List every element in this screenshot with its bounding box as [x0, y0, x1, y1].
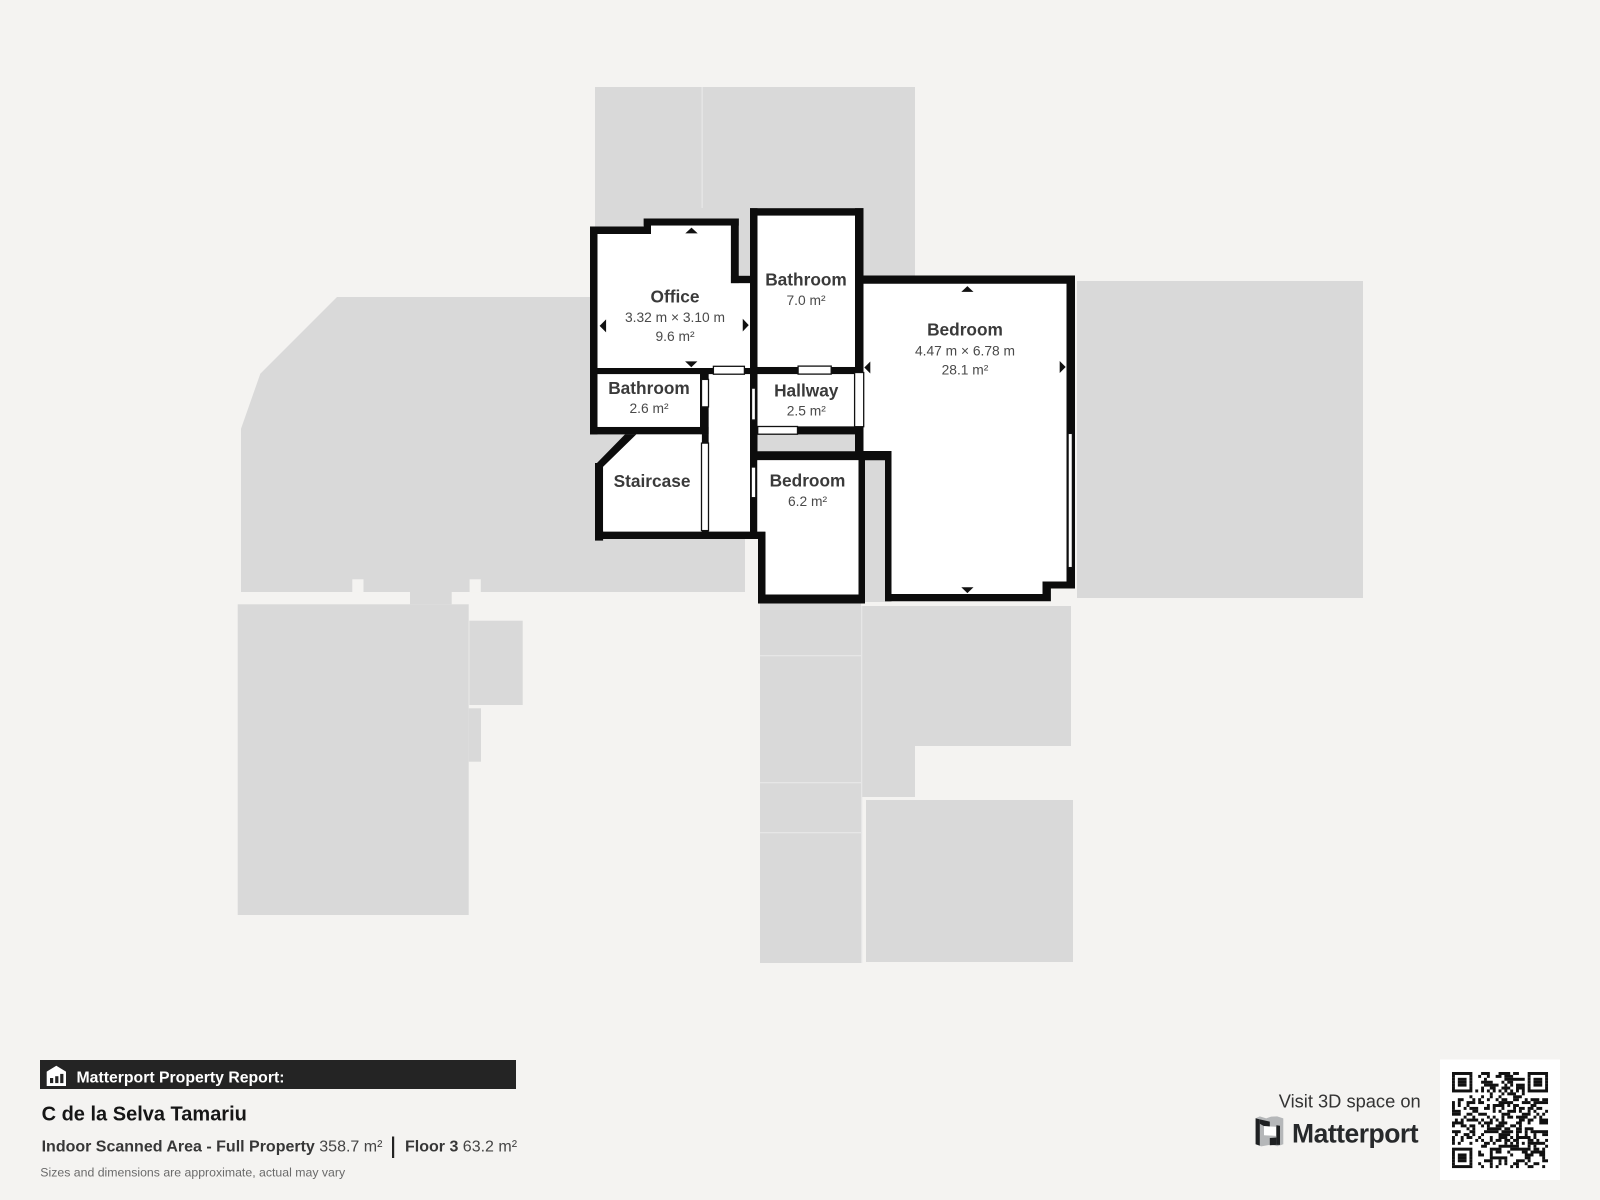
svg-text:C de la Selva Tamariu: C de la Selva Tamariu: [42, 1104, 247, 1126]
svg-text:Matterport: Matterport: [1292, 1119, 1419, 1149]
svg-text:9.6 m²: 9.6 m²: [655, 329, 695, 344]
svg-text:6.2 m²: 6.2 m²: [788, 494, 828, 509]
svg-text:Visit 3D space on: Visit 3D space on: [1279, 1090, 1421, 1111]
svg-text:3.32 m × 3.10 m: 3.32 m × 3.10 m: [625, 310, 725, 325]
svg-text:2.5 m²: 2.5 m²: [787, 404, 827, 419]
svg-text:Bedroom: Bedroom: [770, 471, 846, 491]
svg-text:Floor 3 63.2 m²: Floor 3 63.2 m²: [405, 1138, 518, 1155]
svg-text:Bathroom: Bathroom: [765, 270, 847, 290]
svg-text:Sizes and dimensions are appro: Sizes and dimensions are approximate, ac…: [40, 1165, 346, 1179]
svg-text:Bedroom: Bedroom: [927, 320, 1003, 340]
svg-text:Matterport Property Report:: Matterport Property Report:: [77, 1069, 285, 1086]
svg-text:28.1 m²: 28.1 m²: [942, 363, 989, 378]
svg-text:Hallway: Hallway: [774, 380, 839, 400]
svg-text:Staircase: Staircase: [614, 471, 691, 491]
svg-text:4.47 m × 6.78 m: 4.47 m × 6.78 m: [915, 343, 1015, 358]
svg-text:2.6 m²: 2.6 m²: [629, 401, 669, 416]
svg-text:Indoor Scanned Area - Full Pro: Indoor Scanned Area - Full Property 358.…: [42, 1138, 383, 1155]
svg-text:Office: Office: [651, 287, 700, 307]
svg-text:Bathroom: Bathroom: [608, 378, 690, 398]
svg-text:7.0 m²: 7.0 m²: [786, 293, 826, 308]
